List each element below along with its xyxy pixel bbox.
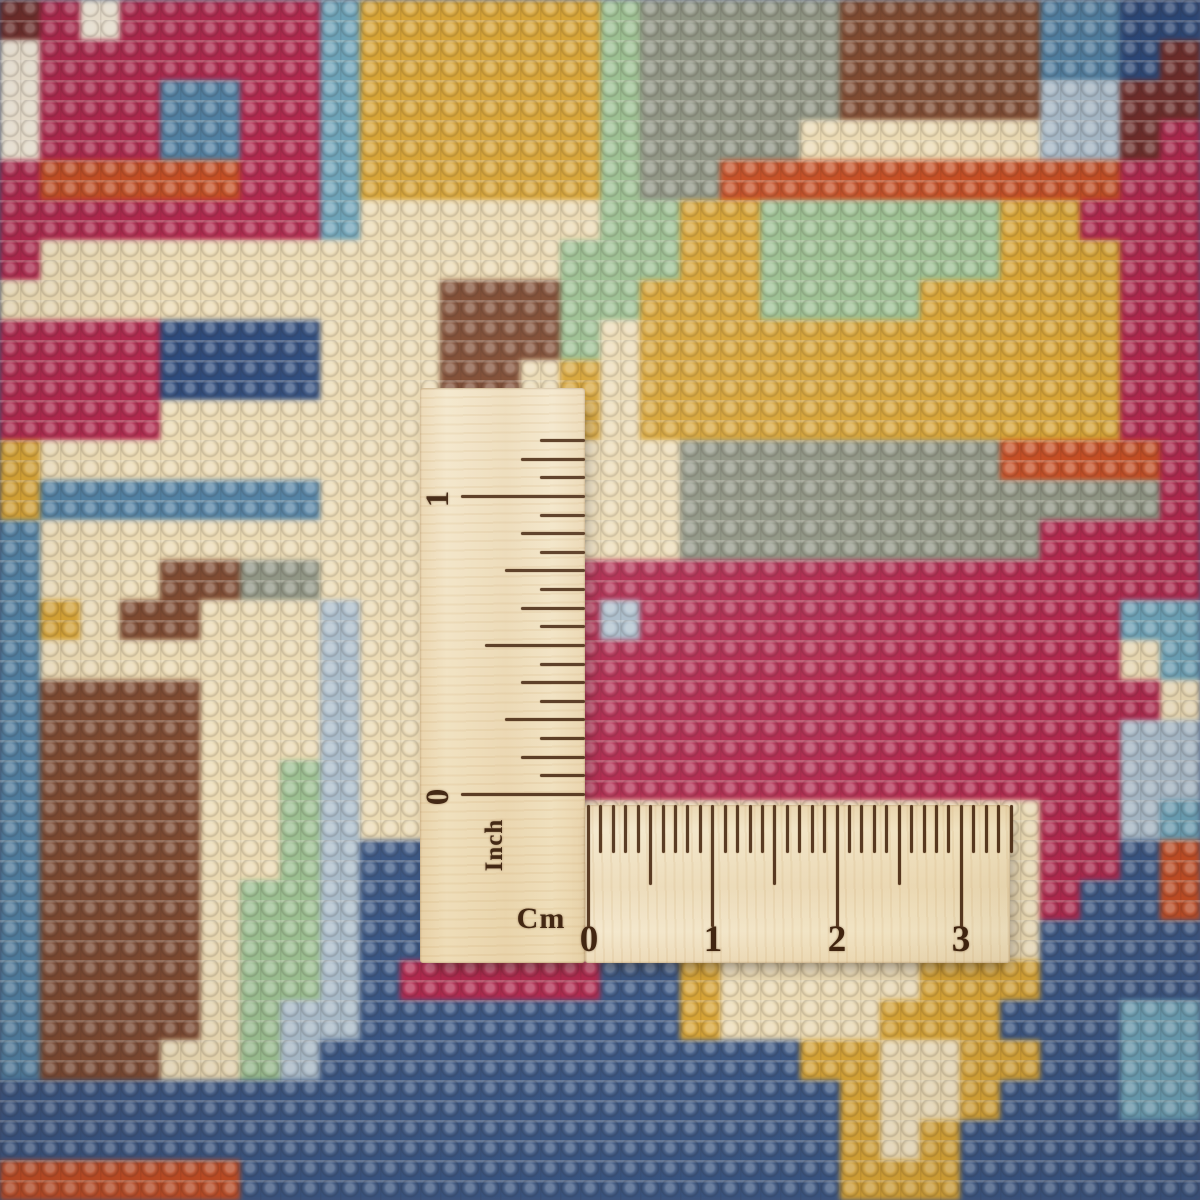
carpet-cell <box>680 1160 720 1200</box>
carpet-cell <box>280 120 320 160</box>
carpet-cell <box>40 960 80 1000</box>
carpet-cell <box>200 160 240 200</box>
carpet-cell <box>240 200 280 240</box>
carpet-cell <box>320 760 360 800</box>
carpet-cell <box>360 480 400 520</box>
carpet-cell <box>520 120 560 160</box>
carpet-cell <box>800 960 840 1000</box>
carpet-cell <box>1160 200 1200 240</box>
carpet-cell <box>920 1080 960 1120</box>
carpet-cell <box>1040 240 1080 280</box>
carpet-cell <box>840 440 880 480</box>
carpet-cell <box>960 160 1000 200</box>
carpet-cell <box>240 440 280 480</box>
carpet-cell <box>40 920 80 960</box>
carpet-cell <box>160 520 200 560</box>
carpet-cell <box>1080 1040 1120 1080</box>
carpet-cell <box>640 640 680 680</box>
carpet-cell <box>600 440 640 480</box>
carpet-cell <box>920 160 960 200</box>
carpet-cell <box>80 840 120 880</box>
inch-tick <box>540 551 585 554</box>
carpet-cell <box>800 160 840 200</box>
carpet-cell <box>1160 920 1200 960</box>
carpet-cell <box>840 480 880 520</box>
carpet-cell <box>960 360 1000 400</box>
carpet-cell <box>720 280 760 320</box>
carpet-cell <box>360 560 400 600</box>
carpet-cell <box>760 680 800 720</box>
carpet-cell <box>920 520 960 560</box>
carpet-cell <box>360 80 400 120</box>
carpet-cell <box>680 600 720 640</box>
cm-tick <box>724 805 727 853</box>
carpet-cell <box>120 400 160 440</box>
carpet-cell <box>240 520 280 560</box>
carpet-cell <box>520 1080 560 1120</box>
carpet-cell <box>920 560 960 600</box>
carpet-cell <box>0 200 40 240</box>
carpet-cell <box>240 560 280 600</box>
cm-tick <box>624 805 627 853</box>
carpet-cell <box>200 1040 240 1080</box>
carpet-cell <box>240 880 280 920</box>
carpet-cell <box>600 1120 640 1160</box>
carpet-cell <box>1120 480 1160 520</box>
carpet-cell <box>560 1120 600 1160</box>
carpet-cell <box>440 1080 480 1120</box>
carpet-cell <box>1120 120 1160 160</box>
carpet-cell <box>840 680 880 720</box>
carpet-cell <box>160 1080 200 1120</box>
carpet-cell <box>880 280 920 320</box>
carpet-cell <box>160 680 200 720</box>
carpet-cell <box>600 360 640 400</box>
inch-tick <box>540 663 585 666</box>
carpet-cell <box>160 0 200 40</box>
carpet-cell <box>280 640 320 680</box>
carpet-cell <box>880 520 920 560</box>
carpet-cell <box>1160 440 1200 480</box>
carpet-cell <box>320 640 360 680</box>
carpet-cell <box>920 480 960 520</box>
carpet-cell <box>160 360 200 400</box>
carpet-cell <box>840 160 880 200</box>
carpet-cell <box>240 120 280 160</box>
carpet-cell <box>720 360 760 400</box>
carpet-cell <box>840 320 880 360</box>
carpet-cell <box>280 600 320 640</box>
carpet-cell <box>600 520 640 560</box>
carpet-cell <box>640 0 680 40</box>
carpet-cell <box>520 40 560 80</box>
carpet-cell <box>200 800 240 840</box>
carpet-cell <box>1120 880 1160 920</box>
carpet-cell <box>600 0 640 40</box>
cm-tick <box>947 805 950 853</box>
carpet-cell <box>1080 760 1120 800</box>
carpet-cell <box>0 240 40 280</box>
inch-tick <box>540 774 585 777</box>
carpet-cell <box>1000 160 1040 200</box>
carpet-cell <box>680 560 720 600</box>
carpet-cell <box>160 960 200 1000</box>
carpet-cell <box>80 0 120 40</box>
cm-tick <box>960 805 963 927</box>
carpet-cell <box>440 240 480 280</box>
carpet-cell <box>320 200 360 240</box>
carpet-cell <box>280 240 320 280</box>
carpet-cell <box>0 160 40 200</box>
carpet-cell <box>760 1160 800 1200</box>
carpet-cell <box>240 1120 280 1160</box>
carpet-cell <box>40 720 80 760</box>
carpet-cell <box>160 480 200 520</box>
cm-tick <box>686 805 689 853</box>
carpet-cell <box>0 640 40 680</box>
carpet-cell <box>40 1160 80 1200</box>
carpet-cell <box>960 80 1000 120</box>
carpet-cell <box>680 520 720 560</box>
carpet-cell <box>160 760 200 800</box>
carpet-cell <box>1000 720 1040 760</box>
carpet-cell <box>240 360 280 400</box>
carpet-cell <box>480 1120 520 1160</box>
carpet-cell <box>320 440 360 480</box>
cm-tick <box>1010 805 1013 853</box>
cm-tick <box>699 805 702 853</box>
carpet-cell <box>560 960 600 1000</box>
carpet-cell <box>280 840 320 880</box>
carpet-cell <box>1160 240 1200 280</box>
carpet-cell <box>800 1000 840 1040</box>
carpet-cell <box>840 1040 880 1080</box>
carpet-cell <box>920 640 960 680</box>
carpet-cell <box>960 280 1000 320</box>
carpet-cell <box>840 120 880 160</box>
carpet-cell <box>80 320 120 360</box>
carpet-cell <box>960 1120 1000 1160</box>
carpet-cell <box>40 480 80 520</box>
carpet-cell <box>120 440 160 480</box>
carpet-cell <box>760 1080 800 1120</box>
carpet-cell <box>840 280 880 320</box>
carpet-cell <box>480 960 520 1000</box>
carpet-cell <box>80 280 120 320</box>
carpet-cell <box>880 760 920 800</box>
carpet-cell <box>280 480 320 520</box>
carpet-cell <box>1160 320 1200 360</box>
carpet-cell <box>0 560 40 600</box>
carpet-cell <box>1120 1160 1160 1200</box>
carpet-cell <box>760 360 800 400</box>
carpet-cell <box>640 240 680 280</box>
carpet-cell <box>200 400 240 440</box>
carpet-cell <box>40 240 80 280</box>
carpet-cell <box>1160 680 1200 720</box>
carpet-cell <box>760 400 800 440</box>
carpet-cell <box>0 1080 40 1120</box>
carpet-cell <box>880 1160 920 1200</box>
carpet-cell <box>40 1000 80 1040</box>
carpet-cell <box>120 520 160 560</box>
cm-tick <box>985 805 988 853</box>
carpet-cell <box>720 1040 760 1080</box>
carpet-cell <box>1040 520 1080 560</box>
carpet-cell <box>480 160 520 200</box>
carpet-cell <box>520 80 560 120</box>
carpet-cell <box>0 80 40 120</box>
carpet-cell <box>480 120 520 160</box>
carpet-cell <box>640 1040 680 1080</box>
cm-tick <box>637 805 640 853</box>
carpet-cell <box>760 280 800 320</box>
carpet-cell <box>960 40 1000 80</box>
carpet-cell <box>280 560 320 600</box>
carpet-cell <box>760 40 800 80</box>
carpet-cell <box>1000 360 1040 400</box>
carpet-cell <box>80 240 120 280</box>
carpet-cell <box>1120 800 1160 840</box>
carpet-cell <box>600 200 640 240</box>
carpet-cell <box>1120 840 1160 880</box>
carpet-cell <box>640 760 680 800</box>
carpet-cell <box>280 680 320 720</box>
carpet-cell <box>880 600 920 640</box>
carpet-cell <box>920 360 960 400</box>
carpet-cell <box>1160 400 1200 440</box>
carpet-cell <box>320 80 360 120</box>
carpet-cell <box>480 1040 520 1080</box>
cm-tick <box>761 805 764 853</box>
carpet-cell <box>840 1120 880 1160</box>
carpet-cell <box>280 1080 320 1120</box>
carpet-cell <box>400 160 440 200</box>
carpet-cell <box>240 240 280 280</box>
carpet-cell <box>1120 320 1160 360</box>
carpet-cell <box>0 1120 40 1160</box>
carpet-cell <box>1120 80 1160 120</box>
carpet-cell <box>800 0 840 40</box>
carpet-cell <box>40 160 80 200</box>
carpet-cell <box>440 1160 480 1200</box>
inch-tick <box>521 681 585 684</box>
carpet-cell <box>600 760 640 800</box>
carpet-cell <box>640 280 680 320</box>
carpet-cell <box>0 0 40 40</box>
carpet-cell <box>1040 400 1080 440</box>
carpet-cell <box>400 240 440 280</box>
carpet-cell <box>1080 360 1120 400</box>
carpet-cell <box>160 200 200 240</box>
carpet-cell <box>920 240 960 280</box>
carpet-cell <box>480 200 520 240</box>
inch-tick <box>521 607 585 610</box>
carpet-cell <box>1080 80 1120 120</box>
carpet-cell <box>960 1080 1000 1120</box>
carpet-cell <box>880 960 920 1000</box>
carpet-cell <box>720 560 760 600</box>
cm-tick <box>798 805 801 853</box>
carpet-cell <box>960 400 1000 440</box>
carpet-cell <box>0 520 40 560</box>
carpet-cell <box>1080 1160 1120 1200</box>
carpet-cell <box>200 80 240 120</box>
carpet-cell <box>1000 400 1040 440</box>
carpet-cell <box>360 240 400 280</box>
carpet-cell <box>600 160 640 200</box>
cm-tick <box>662 805 665 853</box>
carpet-cell <box>1160 120 1200 160</box>
carpet-cell <box>440 1040 480 1080</box>
carpet-cell <box>1080 600 1120 640</box>
carpet-cell <box>1080 800 1120 840</box>
carpet-cell <box>920 320 960 360</box>
carpet-cell <box>1040 800 1080 840</box>
carpet-cell <box>1160 600 1200 640</box>
carpet-cell <box>680 400 720 440</box>
carpet-cell <box>80 1040 120 1080</box>
carpet-cell <box>1000 560 1040 600</box>
carpet-cell <box>840 0 880 40</box>
carpet-cell <box>440 0 480 40</box>
ruler-horizontal-arm-cm: 0 1 2 3 <box>585 805 1010 963</box>
carpet-cell <box>120 200 160 240</box>
carpet-cell <box>600 120 640 160</box>
carpet-cell <box>800 1040 840 1080</box>
carpet-cell <box>240 680 280 720</box>
carpet-cell <box>640 400 680 440</box>
carpet-cell <box>280 280 320 320</box>
carpet-cell <box>40 880 80 920</box>
carpet-cell <box>360 680 400 720</box>
carpet-cell <box>40 280 80 320</box>
carpet-cell <box>840 400 880 440</box>
carpet-cell <box>200 840 240 880</box>
carpet-cell <box>680 0 720 40</box>
carpet-cell <box>80 1160 120 1200</box>
carpet-cell <box>1120 0 1160 40</box>
carpet-cell <box>960 0 1000 40</box>
carpet-cell <box>280 0 320 40</box>
carpet-cell <box>320 280 360 320</box>
carpet-cell <box>320 0 360 40</box>
carpet-cell <box>480 240 520 280</box>
carpet-cell <box>1040 760 1080 800</box>
carpet-cell <box>120 680 160 720</box>
carpet-cell <box>280 1040 320 1080</box>
carpet-cell <box>1160 800 1200 840</box>
carpet-cell <box>720 320 760 360</box>
carpet-cell <box>120 880 160 920</box>
carpet-cell <box>840 760 880 800</box>
carpet-cell <box>80 1080 120 1120</box>
carpet-cell <box>760 160 800 200</box>
carpet-cell <box>880 1120 920 1160</box>
carpet-cell <box>1160 960 1200 1000</box>
carpet-cell <box>800 680 840 720</box>
carpet-cell <box>800 640 840 680</box>
carpet-cell <box>920 400 960 440</box>
carpet-cell <box>640 960 680 1000</box>
carpet-cell <box>920 760 960 800</box>
carpet-cell <box>80 160 120 200</box>
carpet-cell <box>680 720 720 760</box>
carpet-cell <box>720 40 760 80</box>
carpet-cell <box>800 320 840 360</box>
carpet-cell <box>920 120 960 160</box>
carpet-cell <box>1000 1080 1040 1120</box>
carpet-cell <box>880 640 920 680</box>
carpet-cell <box>0 680 40 720</box>
carpet-cell <box>80 520 120 560</box>
carpet-cell <box>80 120 120 160</box>
carpet-cell <box>160 1000 200 1040</box>
carpet-cell <box>1120 280 1160 320</box>
carpet-cell <box>840 720 880 760</box>
carpet-cell <box>760 200 800 240</box>
carpet-cell <box>120 480 160 520</box>
carpet-cell <box>40 640 80 680</box>
carpet-cell <box>80 440 120 480</box>
carpet-cell <box>240 960 280 1000</box>
carpet-cell <box>200 560 240 600</box>
carpet-cell <box>1040 920 1080 960</box>
carpet-cell <box>800 1080 840 1120</box>
carpet-cell <box>40 680 80 720</box>
carpet-cell <box>600 720 640 760</box>
carpet-cell <box>200 360 240 400</box>
carpet-cell <box>400 1000 440 1040</box>
carpet-cell <box>1040 640 1080 680</box>
carpet-cell <box>920 720 960 760</box>
carpet-cell <box>440 40 480 80</box>
carpet-cell <box>240 80 280 120</box>
carpet-cell <box>320 960 360 1000</box>
carpet-cell <box>120 800 160 840</box>
carpet-cell <box>560 120 600 160</box>
carpet-cell <box>720 1000 760 1040</box>
carpet-cell <box>1120 680 1160 720</box>
carpet-cell <box>280 80 320 120</box>
carpet-cell <box>680 440 720 480</box>
carpet-cell <box>1080 40 1120 80</box>
carpet-cell <box>560 200 600 240</box>
carpet-cell <box>800 240 840 280</box>
carpet-cell <box>600 240 640 280</box>
carpet-cell <box>720 400 760 440</box>
carpet-cell <box>960 560 1000 600</box>
carpet-cell <box>200 1080 240 1120</box>
carpet-cell <box>800 40 840 80</box>
carpet-cell <box>880 680 920 720</box>
carpet-cell <box>680 960 720 1000</box>
carpet-cell <box>120 360 160 400</box>
carpet-cell <box>1000 240 1040 280</box>
carpet-cell <box>360 960 400 1000</box>
carpet-cell <box>1040 320 1080 360</box>
carpet-cell <box>1160 640 1200 680</box>
carpet-cell <box>600 1040 640 1080</box>
carpet-cell <box>760 480 800 520</box>
carpet-cell <box>0 960 40 1000</box>
carpet-cell <box>600 600 640 640</box>
carpet-cell <box>1120 240 1160 280</box>
carpet-cell <box>640 40 680 80</box>
carpet-cell <box>880 40 920 80</box>
carpet-cell <box>880 400 920 440</box>
carpet-cell <box>1000 640 1040 680</box>
